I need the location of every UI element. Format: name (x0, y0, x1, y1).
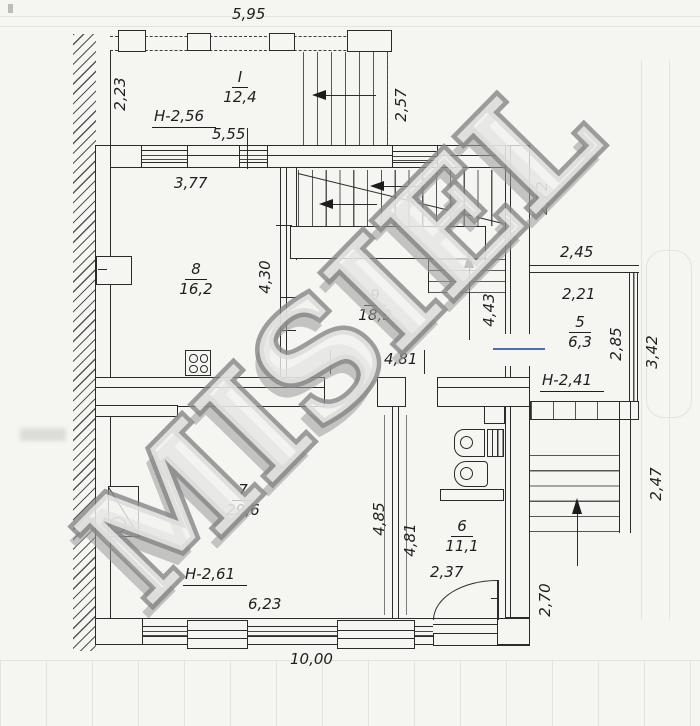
terrace-post (347, 30, 392, 52)
terrace-post (187, 33, 211, 51)
room-label-7: 729,6 (215, 481, 271, 519)
bath-shelf (440, 489, 504, 501)
room-height-label: H-2,56 (152, 108, 216, 125)
external-stair-treads (530, 455, 620, 533)
dim-room8-width: 3,77 (174, 175, 207, 192)
middle-wall (437, 377, 530, 407)
room-label-6: 611,1 (434, 517, 490, 555)
dim-bath-width: 2,37 (430, 564, 463, 581)
dim-balcony-inner-right: 2,85 (608, 322, 624, 366)
balcony-top-edge (530, 265, 639, 273)
ghost-band (0, 660, 700, 726)
bidet-circle (460, 467, 473, 480)
hatched-wall-band (73, 34, 96, 651)
dim-corridor: 4,81 (384, 351, 417, 368)
room-label-9: 918,9 (347, 286, 403, 324)
stair-direction-arrow (319, 199, 333, 209)
dim-balcony-top: 2,45 (560, 244, 593, 261)
dimension-line (406, 415, 407, 615)
middle-wall-pier (377, 377, 406, 407)
terrace-post (269, 33, 295, 51)
dim-upper-right: 2,72 (534, 176, 550, 220)
window (337, 620, 415, 649)
window-sill (248, 626, 337, 637)
ghost-line (641, 60, 642, 620)
external-stair-arrow-stem (577, 514, 578, 566)
entrance-threshold (433, 624, 497, 625)
dim-terrace-width: 5,95 (232, 6, 265, 23)
entry-direction-arrow (312, 90, 326, 100)
middle-wall (95, 377, 325, 407)
dim-building-width: 10,00 (290, 651, 333, 668)
dim-terrace-left: 2,23 (112, 72, 128, 116)
ghost-line (0, 26, 700, 27)
floor-plan-scan: 5,95 H-2,56 5,55 3,77 2,45 2,21 4,81 H-2… (0, 0, 700, 726)
toilet-bowl-circle (460, 436, 473, 449)
partition-room7-room6 (392, 407, 399, 618)
external-stair-up-arrow (572, 498, 582, 514)
partition-tick (280, 297, 296, 298)
room-height-label: H-2,61 (183, 566, 247, 583)
room-label-5: 56,3 (552, 313, 608, 351)
toilet-cistern (487, 429, 504, 457)
entrance-door-swing-arc (433, 580, 497, 620)
stair-arrow-stem (330, 204, 377, 205)
room-label-terrace: I12,4 (212, 68, 268, 106)
dim-balcony-inner-top: 2,21 (562, 286, 595, 303)
dim-terrace-right: 2,57 (393, 83, 409, 127)
ghost-smudge (20, 428, 66, 441)
window (240, 150, 267, 163)
top-wall-pier (187, 145, 240, 168)
wall-pilaster (95, 405, 178, 417)
extension-tick (424, 350, 425, 374)
window-sill (415, 626, 433, 637)
balcony-glazing (629, 273, 638, 409)
ghost-line (0, 16, 700, 17)
stair-landing (290, 226, 486, 259)
dim-room8-east: 4,30 (257, 255, 273, 299)
window (142, 150, 187, 163)
partition-room8-stair (280, 168, 287, 377)
bottom-wall-corner (95, 618, 143, 645)
room-label-8: 816,2 (168, 260, 224, 298)
dim-lower-right: 2,70 (537, 578, 553, 622)
scan-speck (8, 4, 13, 13)
flue-box (484, 406, 505, 424)
partition-tick (280, 330, 296, 331)
dim-ext-stair-right: 2,47 (648, 462, 664, 506)
dim-room7-side: 4,85 (371, 497, 387, 541)
stove (185, 350, 211, 376)
dim-balcony-outer-right: 3,42 (644, 330, 660, 374)
chimney-tick (98, 269, 107, 270)
water-heater-circle (110, 517, 126, 533)
terrace-post (118, 30, 146, 52)
top-wall-pier (267, 145, 393, 168)
window (393, 151, 437, 163)
dim-top-wall: 5,55 (212, 126, 245, 143)
stair-up-arrow-stem (469, 266, 470, 340)
window-sill (143, 626, 187, 637)
extension-line (247, 128, 248, 169)
stair-direction-arrow (370, 181, 384, 191)
stair-up-arrow (464, 252, 474, 268)
window (187, 620, 248, 649)
bottom-wall-corner (497, 618, 530, 645)
stair-arrow-stem (381, 186, 422, 187)
chimney-box (96, 256, 132, 285)
dim-room7-width: 6,23 (248, 596, 281, 613)
room-height-label: H-2,41 (540, 372, 604, 389)
balcony-door-threshold (493, 348, 545, 350)
entrance-door-leaf (497, 580, 499, 620)
entry-arrow-stem (324, 95, 376, 96)
dim-stair-east: 4,43 (481, 288, 497, 332)
extension-tick (330, 350, 331, 374)
dim-room6-side: 4,81 (402, 518, 418, 562)
external-stair-right-edge (619, 401, 631, 533)
